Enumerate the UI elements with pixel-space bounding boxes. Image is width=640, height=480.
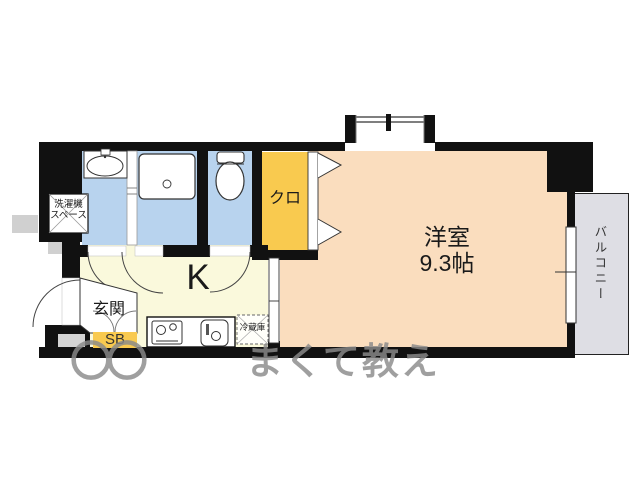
main-room-label: 洋室	[395, 224, 499, 250]
watermark-left: 〇〇	[70, 328, 142, 389]
closet-label: クロ	[262, 190, 308, 208]
floorplan: 洋室 9.3帖 K 玄関 クロ SB バルコニー 洗濯機 スペース 冷蔵庫 〇〇…	[0, 0, 640, 480]
hall-door-arc	[122, 252, 163, 293]
front-door-opening	[62, 278, 80, 325]
washer-space-line2: スペース	[49, 211, 88, 222]
main-room-size-label: 9.3帖	[395, 250, 499, 276]
closet-door-icon	[308, 152, 341, 250]
washroom-door-opening	[88, 246, 126, 256]
washer-space-label: 洗濯機 スペース	[49, 200, 88, 222]
bath-door-icon	[127, 151, 137, 245]
kitchen-label: K	[176, 258, 220, 298]
balcony-sliding-door-icon	[555, 227, 576, 323]
toilet-icon	[216, 152, 244, 200]
bathhall-door-opening	[135, 246, 163, 256]
bathtub-icon	[139, 154, 195, 199]
washbasin-icon	[84, 149, 127, 178]
stove-icon	[152, 321, 182, 344]
watermark-right: まくて教え	[246, 331, 440, 385]
kitchen-counter	[147, 317, 235, 347]
entrance-label: 玄関	[86, 301, 132, 319]
toilet-door-opening	[210, 246, 250, 256]
kitchen-sink-icon	[201, 320, 228, 346]
linework-overlay	[0, 0, 640, 480]
bay-window-icon	[356, 114, 424, 143]
balcony-label: バルコニー	[592, 225, 606, 303]
